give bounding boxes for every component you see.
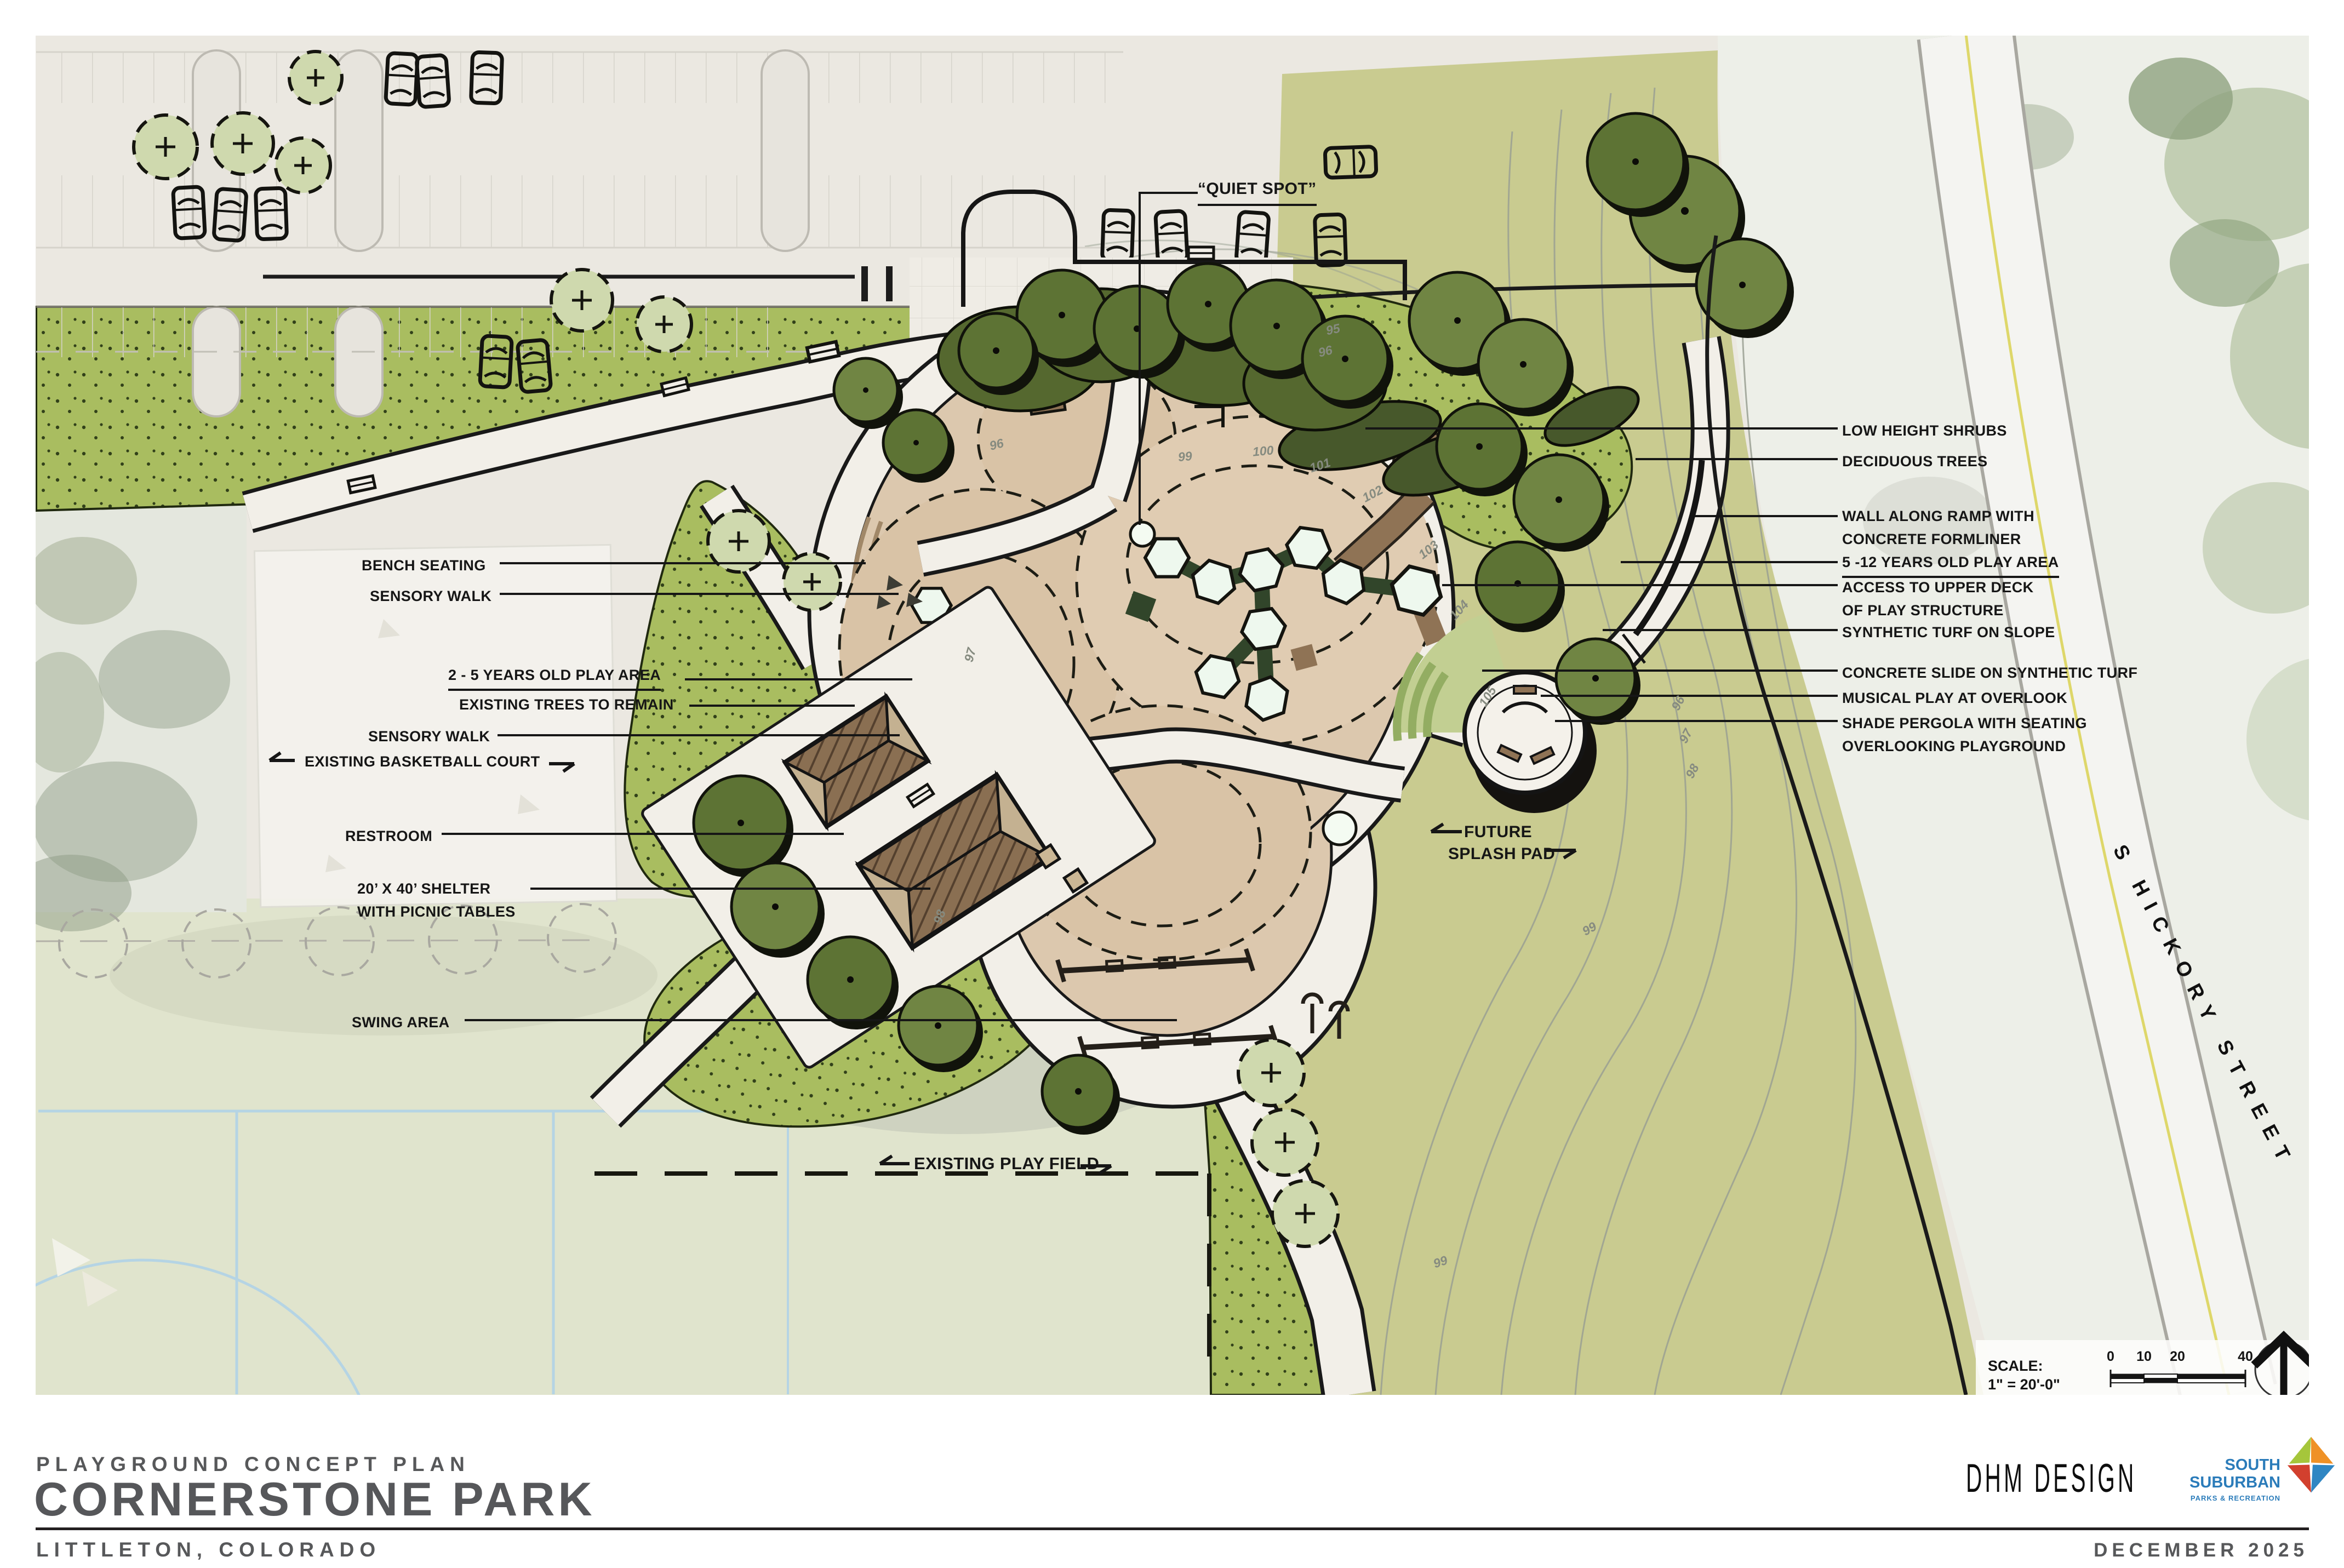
callout-sensory-walk-1: SENSORY WALK: [370, 585, 491, 608]
callout-low-height-shrubs: LOW HEIGHT SHRUBS: [1842, 420, 2007, 443]
callout-concrete-slide: CONCRETE SLIDE ON SYNTHETIC TURF: [1842, 662, 2137, 685]
scale-tick-0: 0: [2107, 1349, 2114, 1365]
callout-deciduous-trees: DECIDUOUS TREES: [1842, 450, 1988, 473]
quiet-spot-marker: [1130, 522, 1154, 546]
callout-sensory-walk-2: SENSORY WALK: [368, 725, 490, 748]
scale-label: SCALE:: [1988, 1358, 2043, 1375]
client-logo-suburban: SUBURBAN: [2159, 1475, 2280, 1491]
contour-elevation-label: 100: [1252, 443, 1274, 459]
label-future-splash-pad-2: SPLASH PAD: [1448, 842, 1555, 867]
callout-access-upper-deck: ACCESS TO UPPER DECK OF PLAY STRUCTURE: [1842, 576, 2034, 622]
callout-shelter: 20’ X 40’ SHELTER WITH PICNIC TABLES: [357, 878, 516, 924]
callout-shade-pergola: SHADE PERGOLA WITH SEATING OVERLOOKING P…: [1842, 712, 2087, 758]
page-title: CORNERSTONE PARK: [34, 1473, 596, 1527]
callout-wall-along-ramp: WALL ALONG RAMP WITH CONCRETE FORMLINER: [1842, 505, 2034, 551]
label-quiet-spot: “QUIET SPOT”: [1198, 176, 1317, 206]
callout-existing-basketball-court: EXISTING BASKETBALL COURT: [305, 751, 540, 774]
callout-play-area-5-12: 5 -12 YEARS OLD PLAY AREA: [1842, 551, 2059, 578]
callout-swing-area: SWING AREA: [352, 1011, 450, 1034]
title-rule: [36, 1527, 2309, 1530]
design-firm-logo: DHM DESIGN: [1966, 1455, 2137, 1501]
client-logo-parks-rec: PARKS & RECREATION: [2159, 1495, 2280, 1502]
scale-ratio: 1" = 20'-0": [1988, 1376, 2060, 1393]
scale-tick-10: 10: [2136, 1349, 2152, 1365]
client-logo-south: SOUTH: [2159, 1457, 2280, 1473]
scale-tick-40: 40: [2238, 1349, 2253, 1365]
client-logo-diamond-icon: [2285, 1434, 2337, 1496]
callout-restroom: RESTROOM: [345, 825, 432, 848]
contour-elevation-label: 95: [1324, 321, 1341, 339]
callout-synthetic-turf: SYNTHETIC TURF ON SLOPE: [1842, 621, 2055, 644]
callout-existing-trees: EXISTING TREES TO REMAIN: [459, 694, 674, 717]
site-plan-drawing: .td .sh{fill:#11130b;transform:translate…: [0, 0, 2344, 1568]
plan-date: DECEMBER 2025: [1863, 1540, 2308, 1561]
callout-musical-play: MUSICAL PLAY AT OVERLOOK: [1842, 687, 2067, 710]
scale-tick-20: 20: [2170, 1349, 2185, 1365]
left-aerial-strip: [11, 496, 247, 931]
location: LITTLETON, COLORADO: [36, 1538, 381, 1561]
callout-play-area-2-5: 2 - 5 YEARS OLD PLAY AREA: [448, 664, 661, 691]
contour-elevation-label: 99: [1177, 449, 1193, 465]
label-existing-play-field: EXISTING PLAY FIELD: [914, 1151, 1099, 1177]
callout-bench-seating: BENCH SEATING: [362, 554, 486, 577]
concept-plan-sheet: .td .sh{fill:#11130b;transform:translate…: [0, 0, 2344, 1568]
